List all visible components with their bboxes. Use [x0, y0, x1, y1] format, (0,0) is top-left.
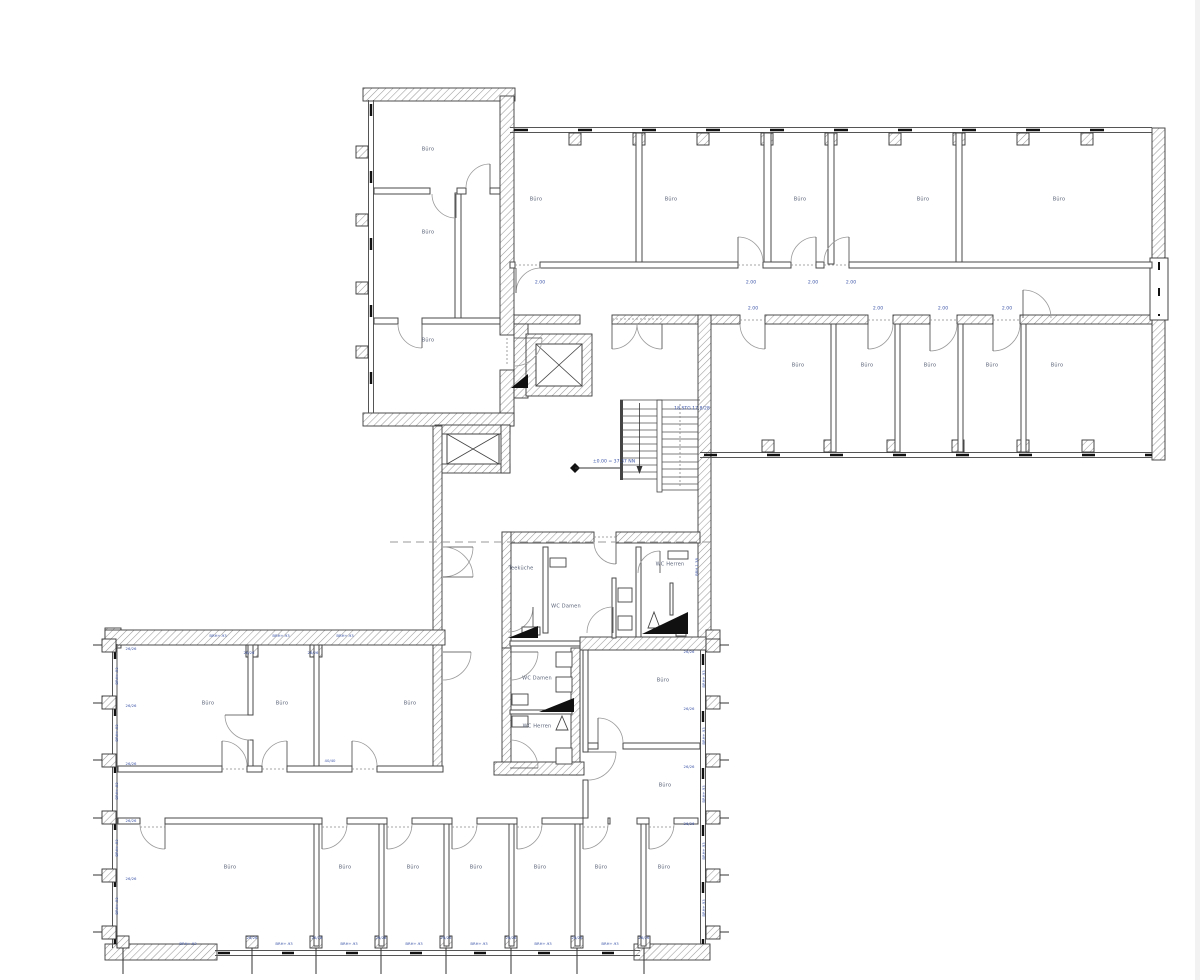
column-ticks	[93, 645, 729, 974]
sanitary-fixtures	[512, 551, 688, 764]
floor-plan-canvas: BüroBüroBüroBüroBüroBüroBüroBüroBüroBüro…	[0, 0, 1200, 980]
level-marker-icon	[570, 463, 620, 473]
viewer-edge	[1195, 0, 1200, 980]
shaft-wedge-icon	[642, 612, 688, 634]
staircase	[620, 400, 700, 492]
shaft-wedge-icon	[539, 698, 574, 712]
floor-plan-drawing	[0, 0, 1200, 980]
exterior-walls	[105, 88, 1165, 960]
facade-columns	[102, 133, 1094, 948]
